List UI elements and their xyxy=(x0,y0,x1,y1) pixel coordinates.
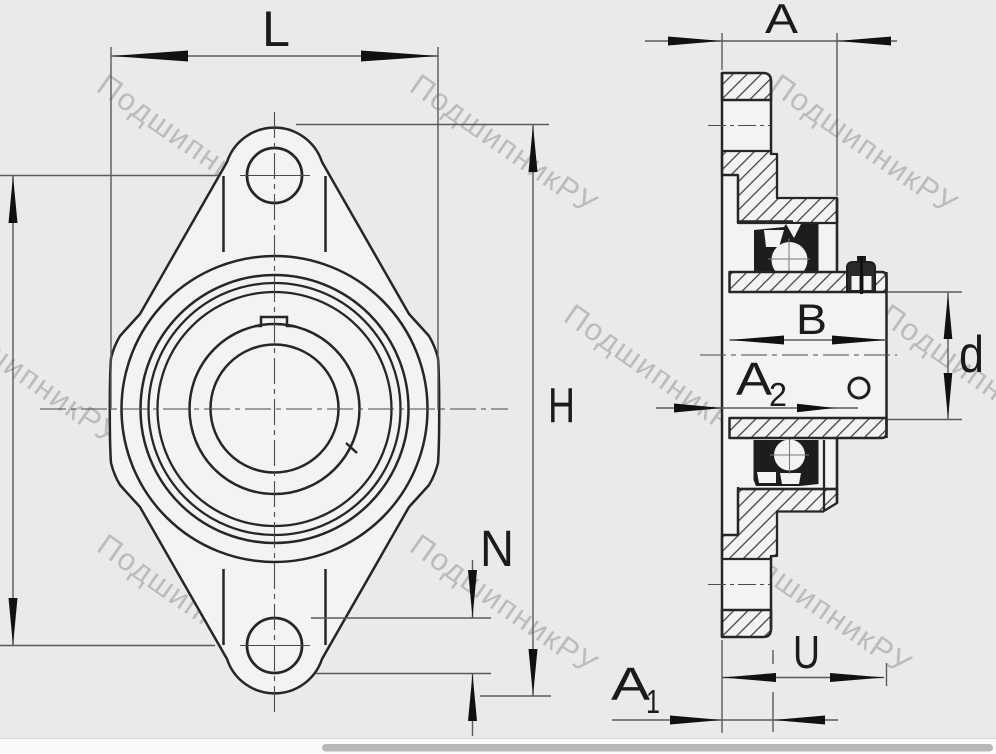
svg-text:L: L xyxy=(262,1,290,57)
svg-text:B: B xyxy=(796,296,827,344)
svg-text:N: N xyxy=(480,520,514,577)
svg-text:d: d xyxy=(959,326,984,384)
svg-text:2: 2 xyxy=(769,376,787,413)
svg-text:A: A xyxy=(736,353,772,405)
svg-text:A: A xyxy=(611,658,650,710)
svg-text:1: 1 xyxy=(646,683,660,720)
svg-text:A: A xyxy=(765,0,798,42)
svg-text:U: U xyxy=(793,626,820,678)
svg-text:H: H xyxy=(548,379,575,433)
